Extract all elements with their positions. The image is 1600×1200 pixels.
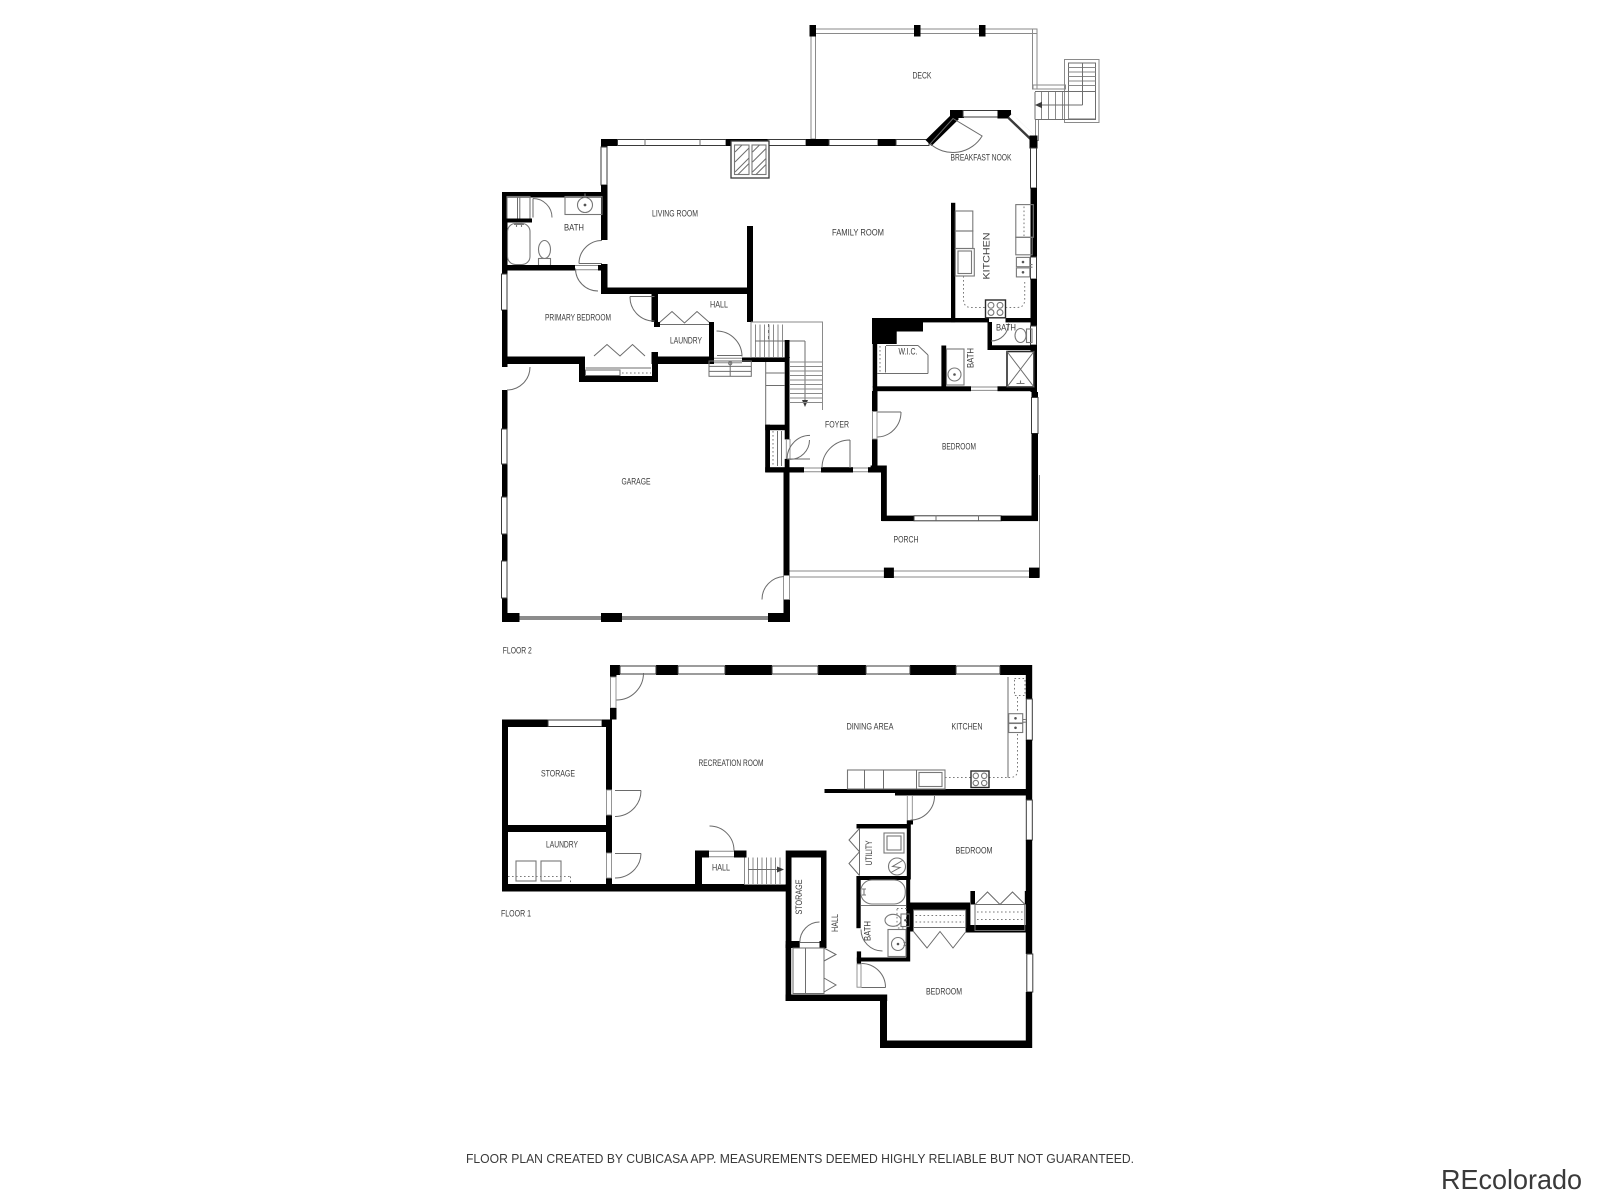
svg-text:FOYER: FOYER [825,420,849,431]
svg-text:BREAKFAST NOOK: BREAKFAST NOOK [951,153,1012,164]
svg-text:BEDROOM: BEDROOM [926,987,962,998]
svg-text:LIVING ROOM: LIVING ROOM [652,209,698,220]
svg-text:BATH: BATH [996,323,1016,334]
svg-text:REcolorado: REcolorado [1441,1164,1582,1195]
svg-text:BATH: BATH [862,921,873,941]
svg-text:BEDROOM: BEDROOM [942,442,976,453]
svg-text:HALL: HALL [710,300,728,311]
svg-text:W.I.C.: W.I.C. [899,347,918,358]
svg-text:DECK: DECK [913,71,932,82]
svg-text:BATH: BATH [966,348,977,368]
svg-text:FAMILY ROOM: FAMILY ROOM [832,228,884,239]
svg-text:LAUNDRY: LAUNDRY [670,336,702,347]
svg-text:STORAGE: STORAGE [794,880,805,915]
svg-text:GARAGE: GARAGE [622,477,651,488]
svg-text:LAUNDRY: LAUNDRY [546,840,578,851]
svg-text:DINING AREA: DINING AREA [847,722,894,733]
svg-text:UTILITY: UTILITY [864,840,875,865]
svg-text:BEDROOM: BEDROOM [956,846,993,857]
svg-text:HALL: HALL [830,914,841,932]
svg-text:RECREATION ROOM: RECREATION ROOM [699,758,764,769]
svg-text:FLOOR 1: FLOOR 1 [501,909,531,920]
svg-text:BATH: BATH [564,223,584,234]
svg-text:HALL: HALL [712,863,730,874]
svg-text:KITCHEN: KITCHEN [982,232,993,279]
svg-text:PORCH: PORCH [894,535,919,546]
svg-text:FLOOR 2: FLOOR 2 [503,646,532,657]
svg-text:KITCHEN: KITCHEN [952,722,983,733]
svg-text:PRIMARY BEDROOM: PRIMARY BEDROOM [545,313,611,324]
svg-text:FLOOR PLAN CREATED BY CUBICASA: FLOOR PLAN CREATED BY CUBICASA APP. MEAS… [466,1151,1134,1166]
svg-text:STORAGE: STORAGE [541,769,575,780]
